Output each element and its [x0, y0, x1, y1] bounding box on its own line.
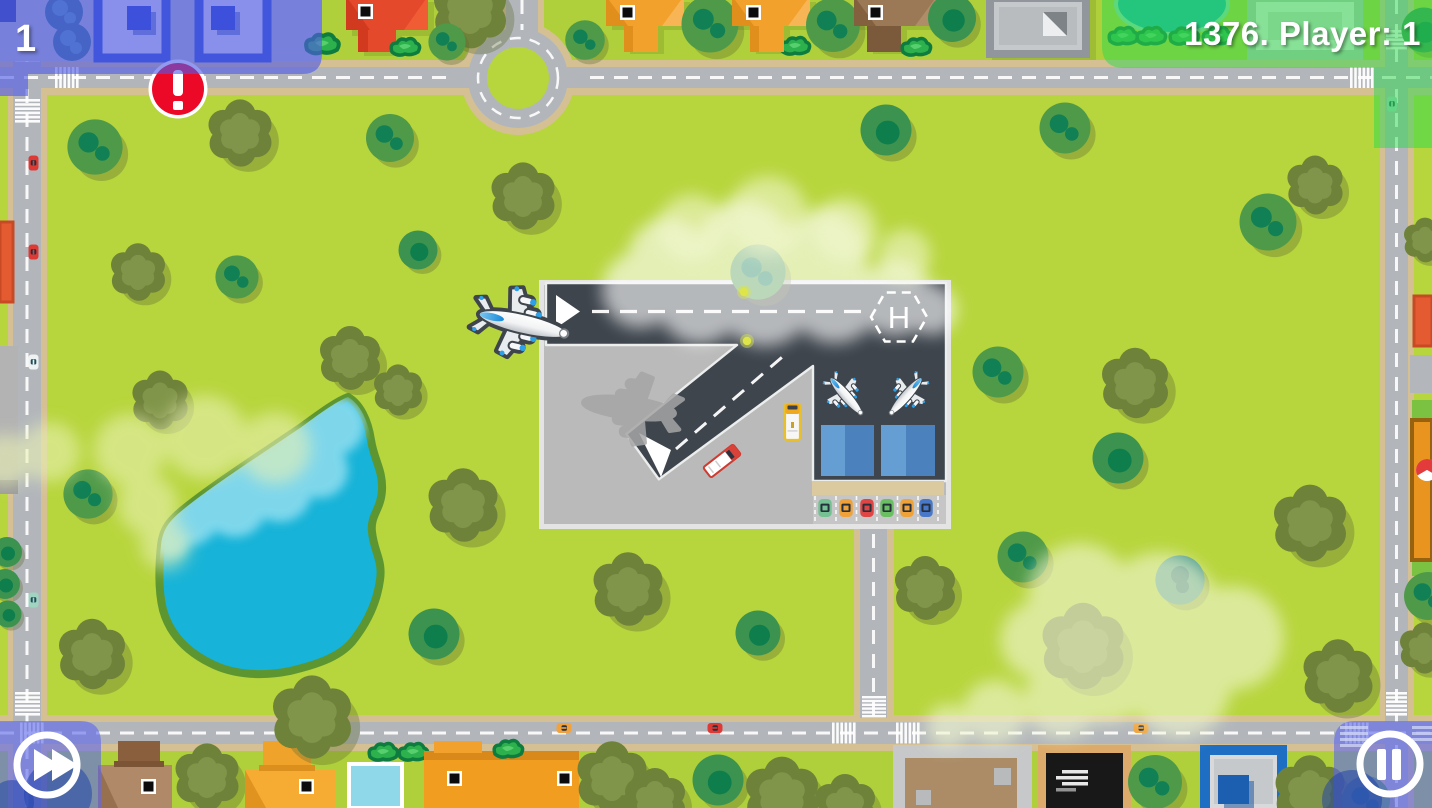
svg-text:1: 1 [15, 18, 36, 60]
svg-text:1376. Player: 1: 1376. Player: 1 [1184, 15, 1421, 52]
